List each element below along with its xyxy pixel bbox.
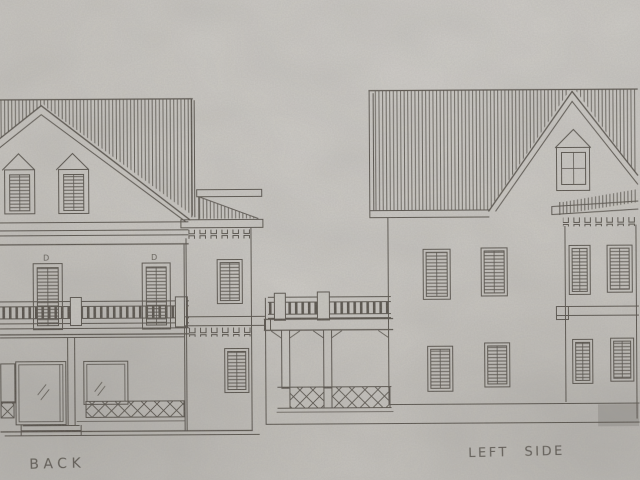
paper-grain-texture <box>0 0 640 480</box>
architectural-drawing-sheet: D D <box>0 0 640 480</box>
elevation-drawings: D D <box>0 0 640 480</box>
